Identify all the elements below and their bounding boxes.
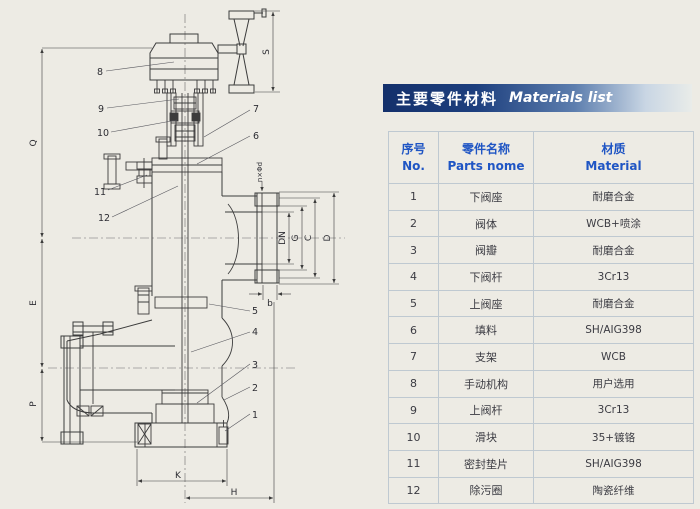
dim-label-e: E (29, 300, 39, 306)
table-row: 4 下阀杆 3Cr13 (389, 264, 694, 291)
cell-material: 35+镀铬 (534, 424, 694, 451)
packing-gland (156, 97, 200, 159)
cell-no: 4 (389, 264, 439, 291)
dimension-b (249, 285, 291, 300)
cell-material: 耐磨合金 (534, 184, 694, 211)
cell-part: 除污圈 (439, 477, 534, 504)
dim-label-s: S (262, 49, 272, 55)
cell-part: 下阀杆 (439, 264, 534, 291)
table-row: 3 阀瓣 耐磨合金 (389, 237, 694, 264)
part-label-1: 1 (252, 410, 258, 421)
header-title-zh: 主要零件材料 (396, 88, 498, 109)
cell-no: 7 (389, 344, 439, 371)
part-label-6: 6 (253, 131, 259, 142)
cell-no: 3 (389, 237, 439, 264)
cell-part: 填料 (439, 317, 534, 344)
col-header-no: 序号 No. (389, 132, 439, 184)
table-row: 12 除污圈 陶瓷纤维 (389, 477, 694, 504)
cell-no: 5 (389, 290, 439, 317)
part-label-3: 3 (252, 360, 258, 371)
part-label-11: 11 (94, 187, 106, 198)
table-row: 8 手动机构 用户选用 (389, 370, 694, 397)
part-label-5: 5 (252, 306, 258, 317)
col-part-zh: 零件名称 (439, 141, 533, 157)
col-material-en: Material (534, 158, 693, 174)
cell-part: 阀瓣 (439, 237, 534, 264)
col-part-en: Parts nome (439, 158, 533, 174)
cell-part: 手动机构 (439, 370, 534, 397)
cell-material: WCB (534, 344, 694, 371)
gearbox-actuator (150, 34, 218, 93)
part-label-8: 8 (97, 67, 103, 78)
valve-body-upper (152, 172, 262, 318)
cell-part: 密封垫片 (439, 450, 534, 477)
cell-material: 3Cr13 (534, 397, 694, 424)
table-row: 5 上阀座 耐磨合金 (389, 290, 694, 317)
cell-no: 2 (389, 210, 439, 237)
part-label-10: 10 (97, 128, 109, 139)
part-label-7: 7 (253, 104, 259, 115)
table-row: 6 填料 SH/AIG398 (389, 317, 694, 344)
cell-part: 上阀座 (439, 290, 534, 317)
cell-material: SH/AIG398 (534, 450, 694, 477)
table-row: 7 支架 WCB (389, 344, 694, 371)
dimension-labels: S Q E P DN G C D n×Φd b K H (29, 49, 333, 498)
table-row: 11 密封垫片 SH/AIG398 (389, 450, 694, 477)
header-title-en: Materials list (509, 90, 612, 106)
materials-list-header-bar: 主要零件材料 Materials list (383, 84, 692, 112)
bottom-flange (135, 420, 228, 447)
catalog-page: S Q E P DN G C D n×Φd b K H (0, 0, 700, 509)
col-material-zh: 材质 (534, 141, 693, 157)
col-header-material: 材质 Material (534, 132, 694, 184)
centerlines (48, 14, 345, 503)
header-row: 序号 No. 零件名称 Parts nome 材质 Material (389, 132, 694, 184)
cell-part: 上阀杆 (439, 397, 534, 424)
cell-material: 3Cr13 (534, 264, 694, 291)
materials-table-body: 1 下阀座 耐磨合金 2 阀体 WCB+喷涂 3 阀瓣 耐磨合金 4 下阀杆 3… (389, 184, 694, 504)
materials-table: 序号 No. 零件名称 Parts nome 材质 Material 1 下阀座… (388, 131, 694, 504)
dim-label-g: G (291, 234, 301, 241)
cell-no: 12 (389, 477, 439, 504)
part-label-12: 12 (98, 213, 110, 224)
part-label-2: 2 (252, 383, 258, 394)
cell-material: 耐磨合金 (534, 290, 694, 317)
cell-no: 1 (389, 184, 439, 211)
dim-label-q: Q (29, 139, 39, 146)
dim-label-c: C (304, 235, 314, 241)
cell-material: 陶瓷纤维 (534, 477, 694, 504)
cell-part: 下阀座 (439, 184, 534, 211)
col-header-part: 零件名称 Parts nome (439, 132, 534, 184)
cell-material: WCB+喷涂 (534, 210, 694, 237)
mid-joint (135, 286, 207, 314)
col-no-en: No. (389, 158, 438, 174)
cell-part: 阀体 (439, 210, 534, 237)
valve-drawing-svg: S Q E P DN G C D n×Φd b K H (0, 0, 383, 509)
dim-label-b: b (267, 299, 273, 309)
valve-body-lower (67, 318, 233, 423)
cell-part: 滑块 (439, 424, 534, 451)
dimension-k (137, 449, 227, 486)
bolt-holes-label: n×Φd (256, 162, 264, 182)
part-label-4: 4 (252, 327, 258, 338)
table-row: 10 滑块 35+镀铬 (389, 424, 694, 451)
dim-label-d: D (323, 234, 333, 241)
materials-table-head: 序号 No. 零件名称 Parts nome 材质 Material (389, 132, 694, 184)
cell-material: SH/AIG398 (534, 317, 694, 344)
table-row: 9 上阀杆 3Cr13 (389, 397, 694, 424)
dimension-p (42, 369, 137, 442)
cell-part: 支架 (439, 344, 534, 371)
table-row: 1 下阀座 耐磨合金 (389, 184, 694, 211)
cell-material: 用户选用 (534, 370, 694, 397)
dim-label-k: K (175, 471, 182, 481)
cell-material: 耐磨合金 (534, 237, 694, 264)
part-label-9: 9 (98, 104, 104, 115)
handwheel (218, 9, 266, 93)
cell-no: 9 (389, 397, 439, 424)
cell-no: 8 (389, 370, 439, 397)
col-no-zh: 序号 (389, 141, 438, 157)
cell-no: 11 (389, 450, 439, 477)
cell-no: 6 (389, 317, 439, 344)
dim-label-p: P (29, 401, 39, 407)
dim-label-dn: DN (278, 231, 288, 245)
valve-technical-drawing: S Q E P DN G C D n×Φd b K H (0, 0, 383, 509)
table-row: 2 阀体 WCB+喷涂 (389, 210, 694, 237)
dim-label-h: H (231, 488, 238, 498)
cell-no: 10 (389, 424, 439, 451)
dimension-h (186, 302, 274, 503)
